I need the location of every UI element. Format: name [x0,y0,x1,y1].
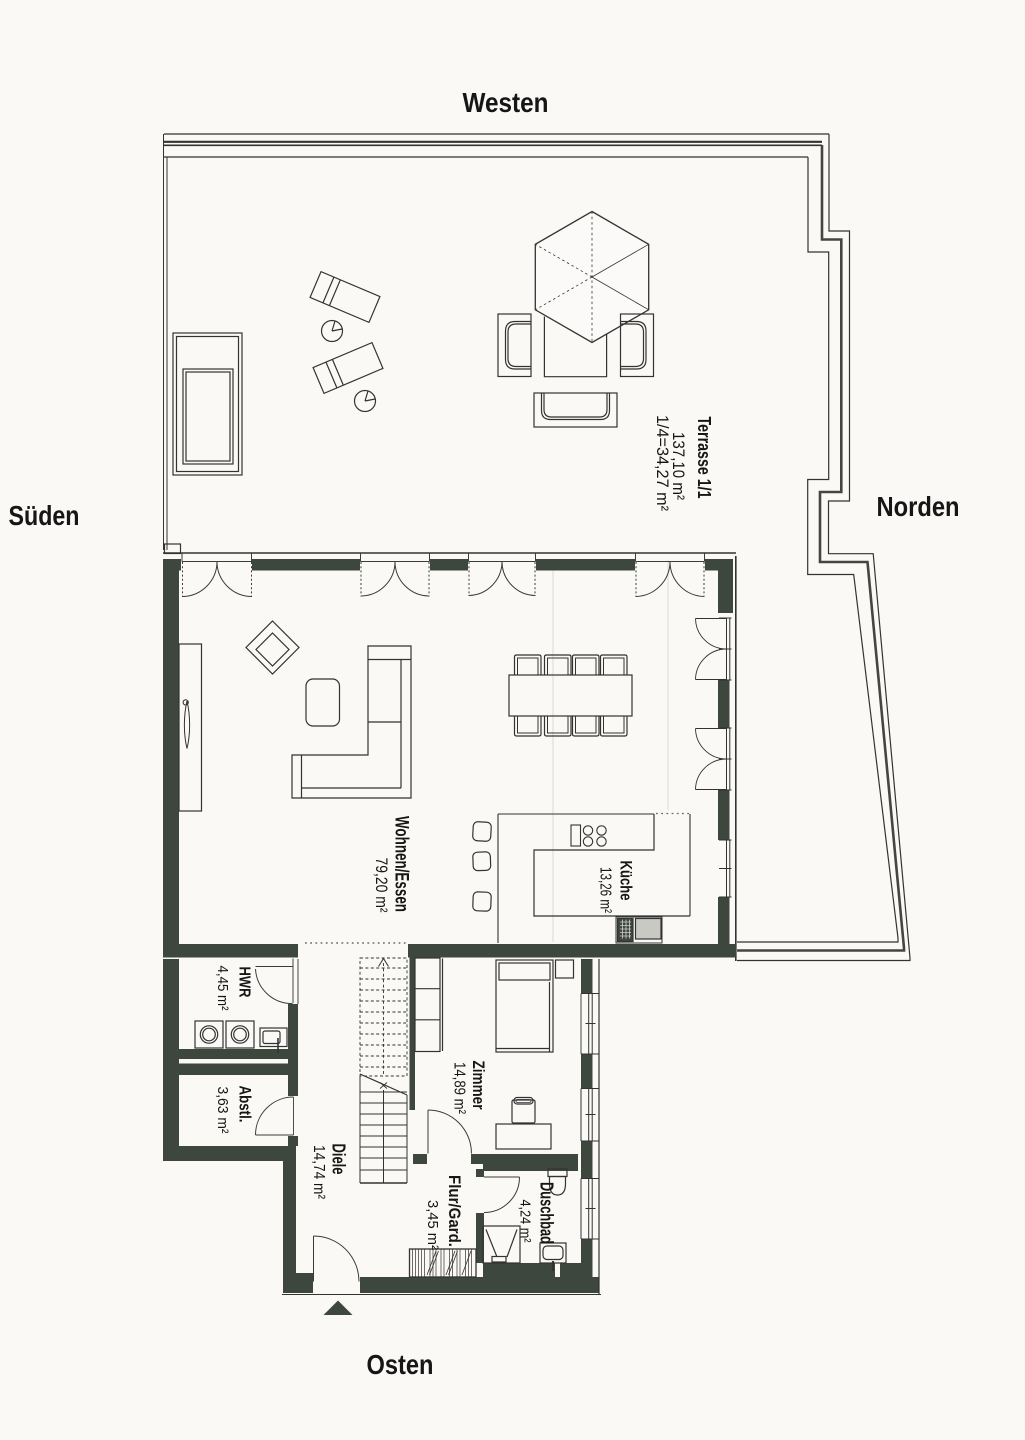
svg-text:Diele: Diele [329,1144,349,1175]
svg-text:14,74 m²: 14,74 m² [310,1145,327,1200]
svg-text:Süden: Süden [9,500,80,531]
svg-text:Wohnen/Essen: Wohnen/Essen [391,816,412,912]
svg-text:Duschbad: Duschbad [537,1182,557,1244]
svg-text:79,20 m²: 79,20 m² [372,858,391,913]
svg-text:4,24 m²: 4,24 m² [517,1200,534,1243]
svg-text:Terrasse 1/1: Terrasse 1/1 [694,417,714,499]
svg-text:Westen: Westen [463,87,549,118]
svg-text:HWR: HWR [236,967,253,998]
svg-text:3,63 m²: 3,63 m² [214,1087,231,1134]
svg-text:Norden: Norden [877,491,960,522]
svg-text:Küche: Küche [617,861,636,901]
svg-text:Abstl.: Abstl. [236,1086,255,1123]
svg-text:Osten: Osten [367,1349,434,1380]
svg-text:1/4=34,27 m²: 1/4=34,27 m² [653,415,672,511]
svg-text:Flur/Gard.: Flur/Gard. [445,1175,464,1247]
svg-text:3,45 m²: 3,45 m² [424,1200,441,1250]
svg-text:13,26 m²: 13,26 m² [597,867,614,913]
svg-text:Zimmer: Zimmer [469,1061,488,1110]
svg-text:4,45 m²: 4,45 m² [214,966,231,1011]
svg-text:14,89 m²: 14,89 m² [451,1062,468,1115]
